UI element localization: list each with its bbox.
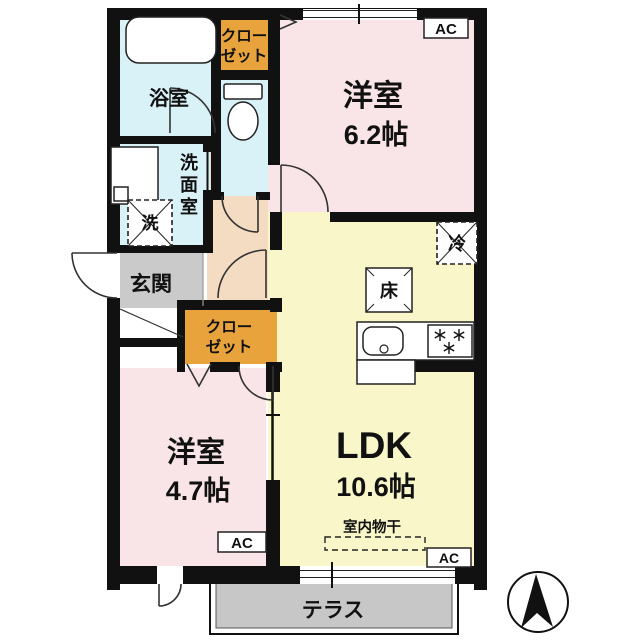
washing-machine-label: 洗 — [142, 213, 159, 233]
vanity-bowl — [114, 187, 128, 201]
floorplan-svg: 浴室 洗 面 室 洗 クロー ゼット 洋室 6.2帖 AC 冷 床 玄関 クロー… — [0, 0, 639, 640]
western-4-7-name: 洋室 — [167, 435, 225, 469]
washroom-label-char1: 洗 — [180, 152, 198, 173]
western-4-7-size: 4.7帖 — [166, 476, 231, 506]
north-arrow-compass — [508, 572, 568, 632]
western-6-2-size: 6.2帖 — [344, 120, 409, 150]
floor-storage-label: 床 — [380, 280, 399, 301]
toilet-fixture — [224, 84, 262, 140]
closet-top-label-line1: クロー — [221, 27, 268, 45]
outswing-door — [159, 584, 181, 606]
ac-label-6-2: AC — [435, 21, 457, 38]
ldk-area — [268, 212, 474, 566]
ldk-name: LDK — [336, 425, 412, 466]
ac-label-4-7: AC — [231, 535, 253, 552]
stove — [428, 325, 472, 357]
bathroom-label: 浴室 — [149, 86, 189, 110]
refrigerator-label: 冷 — [448, 233, 466, 254]
shoe-cabinet-diagonal — [120, 309, 183, 337]
indoor-drying-label: 室内物干 — [343, 518, 401, 536]
ldk-size: 10.6帖 — [336, 472, 416, 502]
terrace-label: テラス — [302, 599, 365, 622]
washroom-label-char3: 室 — [180, 196, 198, 217]
closet-middle-label-line1: クロー — [206, 318, 253, 336]
kitchen-wall-stub — [415, 360, 474, 372]
washroom-label-char2: 面 — [180, 175, 198, 195]
western-6-2-area — [268, 14, 474, 218]
ac-label-ldk: AC — [439, 550, 459, 566]
bathtub — [126, 17, 216, 63]
entrance-label: 玄関 — [130, 272, 172, 296]
western-6-2-name: 洋室 — [343, 79, 403, 113]
closet-top-label-line2: ゼット — [221, 46, 268, 65]
entrance-door — [72, 253, 117, 298]
kitchen-sink — [363, 327, 403, 355]
counter-front — [357, 360, 415, 384]
floorplan-canvas: 浴室 洗 面 室 洗 クロー ゼット 洋室 6.2帖 AC 冷 床 玄関 クロー… — [0, 0, 639, 640]
closet-middle-label-line2: ゼット — [206, 337, 253, 356]
